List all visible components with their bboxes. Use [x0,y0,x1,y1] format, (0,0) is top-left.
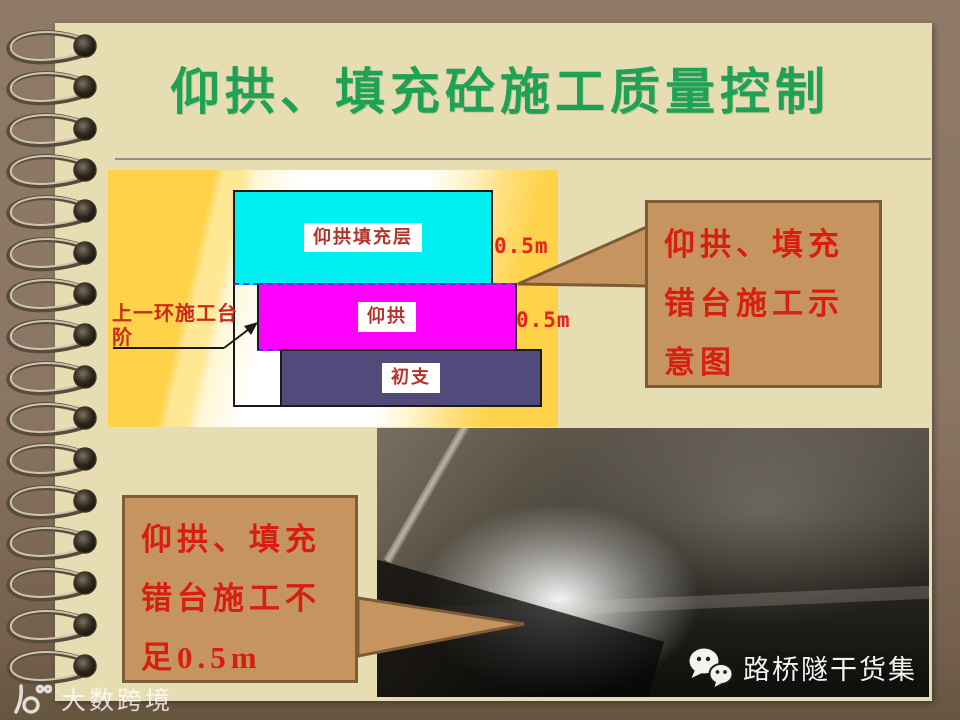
step-arrow-icon [108,170,558,427]
wechat-watermark-text: 路桥隧干货集 [743,648,917,687]
callout-schematic-line3: 意图 [664,333,879,392]
wechat-watermark: 路桥隧干货集 [688,647,917,687]
spiral-binding-icon [0,0,112,720]
step-offset-diagram: 仰拱填充层 仰拱 初支 0.5m 0.5m 上一环施工台阶 [108,170,558,427]
callout-defect-note: 仰拱、填充 错台施工不 足0.5m [122,495,358,683]
slide: 仰拱、填充砼施工质量控制 仰拱填充层 仰拱 初支 0.5m 0.5m 上一环施工… [0,0,960,720]
brand-watermark-text: 大数跨境 [61,681,173,717]
callout-schematic-note: 仰拱、填充 错台施工示 意图 [645,200,882,388]
photo-pipe-shape [384,428,472,564]
wechat-icon [688,647,734,687]
callout-schematic-line2: 错台施工示 [664,274,879,333]
callout-schematic-line1: 仰拱、填充 [664,215,879,274]
slide-title: 仰拱、填充砼施工质量控制 [110,52,890,124]
brand-watermark: 大数跨境 [10,681,173,717]
callout-defect-line1: 仰拱、填充 [141,510,355,569]
title-divider [115,158,931,160]
right-callout-pointer [512,222,652,290]
dashu-logo-icon [10,683,52,715]
left-callout-pointer [352,592,532,662]
callout-defect-line2: 错台施工不 [141,569,355,628]
callout-defect-line3: 足0.5m [141,628,355,687]
